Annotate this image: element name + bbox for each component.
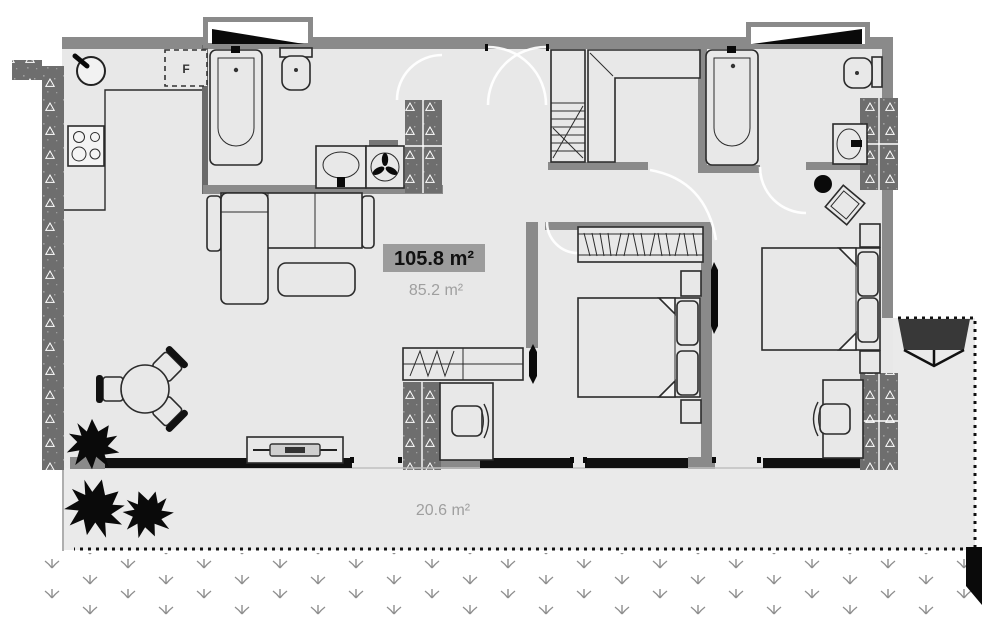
stove-icon <box>68 126 104 166</box>
awning-canopy <box>898 319 970 350</box>
nightstand-icon <box>681 271 701 296</box>
niche-wardrobe-icon <box>403 348 523 380</box>
wall-bottom-seg2 <box>688 457 715 469</box>
grass-area <box>40 553 988 615</box>
nightstand-icon <box>860 351 880 373</box>
basin-tap-icon <box>851 140 862 147</box>
hatch-left-wall <box>42 66 64 470</box>
interior-area-label: 85.2 m² <box>409 282 464 299</box>
stool-icon <box>814 175 832 193</box>
pillow-icon <box>858 252 878 296</box>
glazing-3 <box>585 458 688 468</box>
washbasin-icon <box>316 146 366 188</box>
pillow-icon <box>677 301 698 345</box>
tub-tap-icon <box>231 46 240 53</box>
window-top-right <box>746 22 870 48</box>
dining-chair-icon <box>96 375 123 403</box>
toilet-icon <box>280 48 312 90</box>
toilet-icon <box>844 57 882 88</box>
double-bed-icon <box>578 298 700 397</box>
basin-tap-icon <box>337 177 345 187</box>
coffee-table-icon <box>278 263 355 296</box>
washing-machine-icon <box>366 140 404 188</box>
bathtub-icon <box>210 46 262 165</box>
double-bed-icon <box>762 248 880 350</box>
tv-sideboard-icon <box>247 437 343 463</box>
total-area-label: 105.8 m² <box>394 248 474 270</box>
nightstand-icon <box>860 224 880 247</box>
fridge-label: F <box>182 62 189 76</box>
floor-plan: F <box>0 0 1000 623</box>
wall-masterbath-bottom-l <box>698 165 760 173</box>
wall-tv-icon <box>711 262 718 334</box>
window-top-left <box>203 17 313 48</box>
tub-tap-icon <box>727 46 736 53</box>
glazing-2 <box>480 458 573 468</box>
terrace-floor <box>64 468 975 550</box>
floor-plan-canvas: F <box>0 0 1000 623</box>
hatch-notch-topleft <box>12 60 42 80</box>
glazing-4 <box>763 458 860 468</box>
desk-icon <box>440 383 493 460</box>
pillow-icon <box>677 351 698 395</box>
nightstand-icon <box>681 400 701 423</box>
wardrobe-rail-icon <box>578 227 703 262</box>
bathtub-icon <box>706 46 758 165</box>
terrace-area-label: 20.6 m² <box>416 502 471 519</box>
washbasin-icon <box>833 124 867 164</box>
pillow-icon <box>858 298 878 342</box>
closet-shelves-icon <box>551 50 585 162</box>
wall-bedroom2-left <box>526 222 538 348</box>
dining-table-icon <box>121 365 169 413</box>
wall-closet-bottom <box>548 162 648 170</box>
wall-tv-icon <box>529 344 537 384</box>
